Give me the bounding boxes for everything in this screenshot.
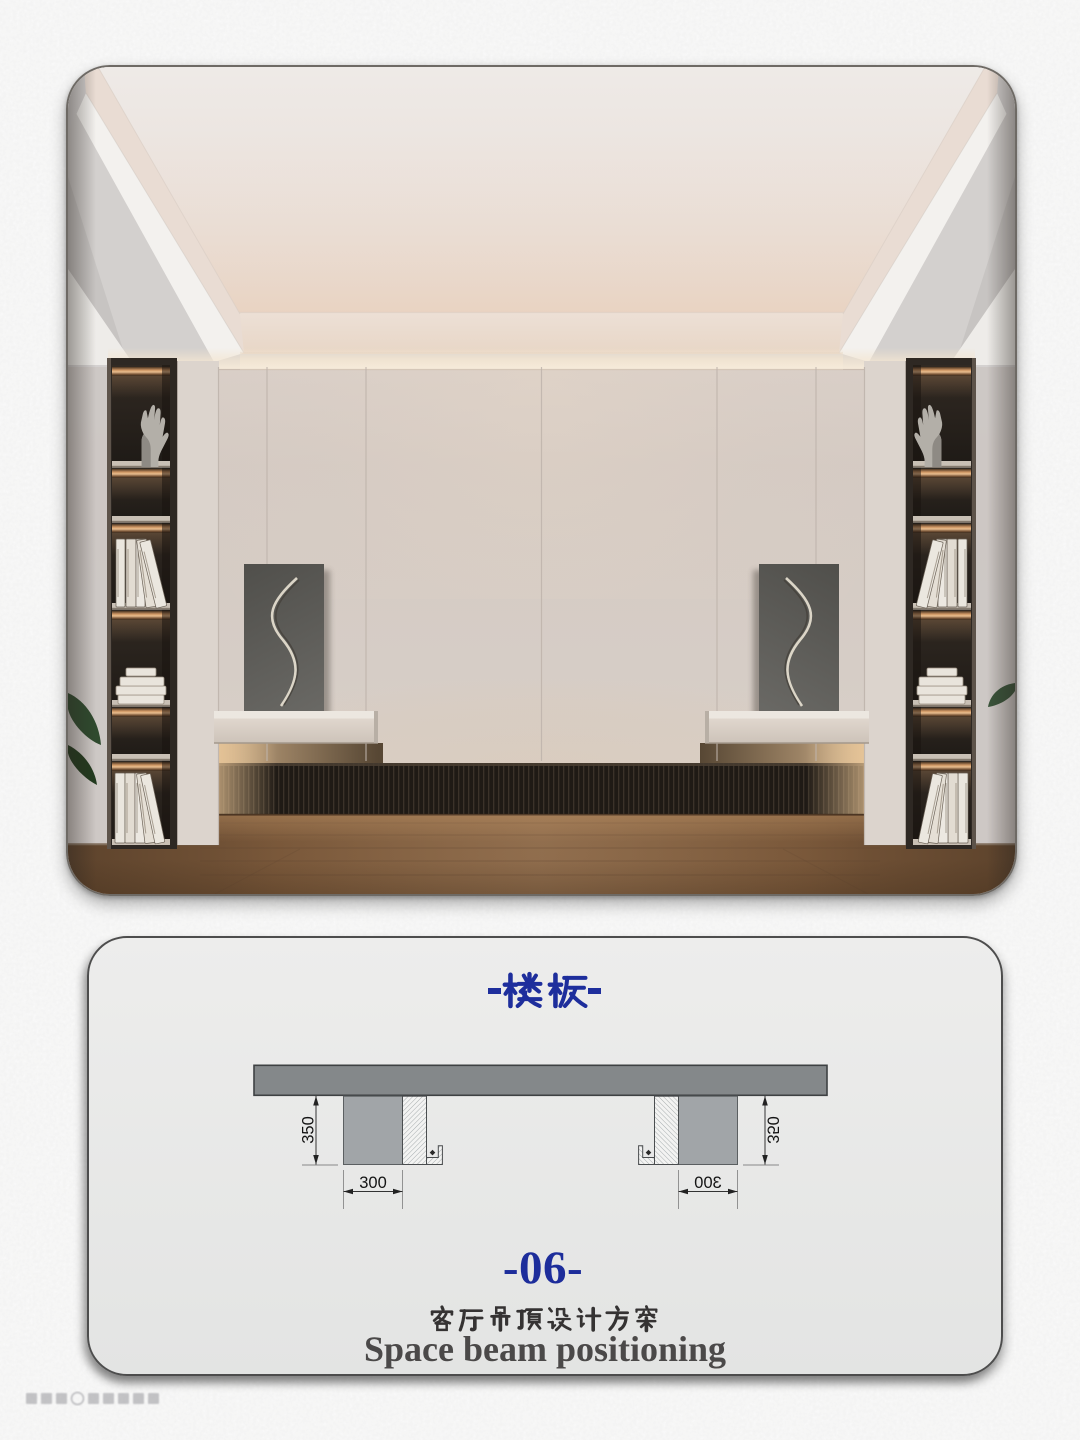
svg-text:-06-: -06- (503, 1242, 583, 1294)
svg-text:350: 350 (299, 1116, 317, 1144)
svg-text:Space beam positioning: Space beam positioning (364, 1329, 726, 1369)
svg-text:300: 300 (359, 1174, 387, 1192)
